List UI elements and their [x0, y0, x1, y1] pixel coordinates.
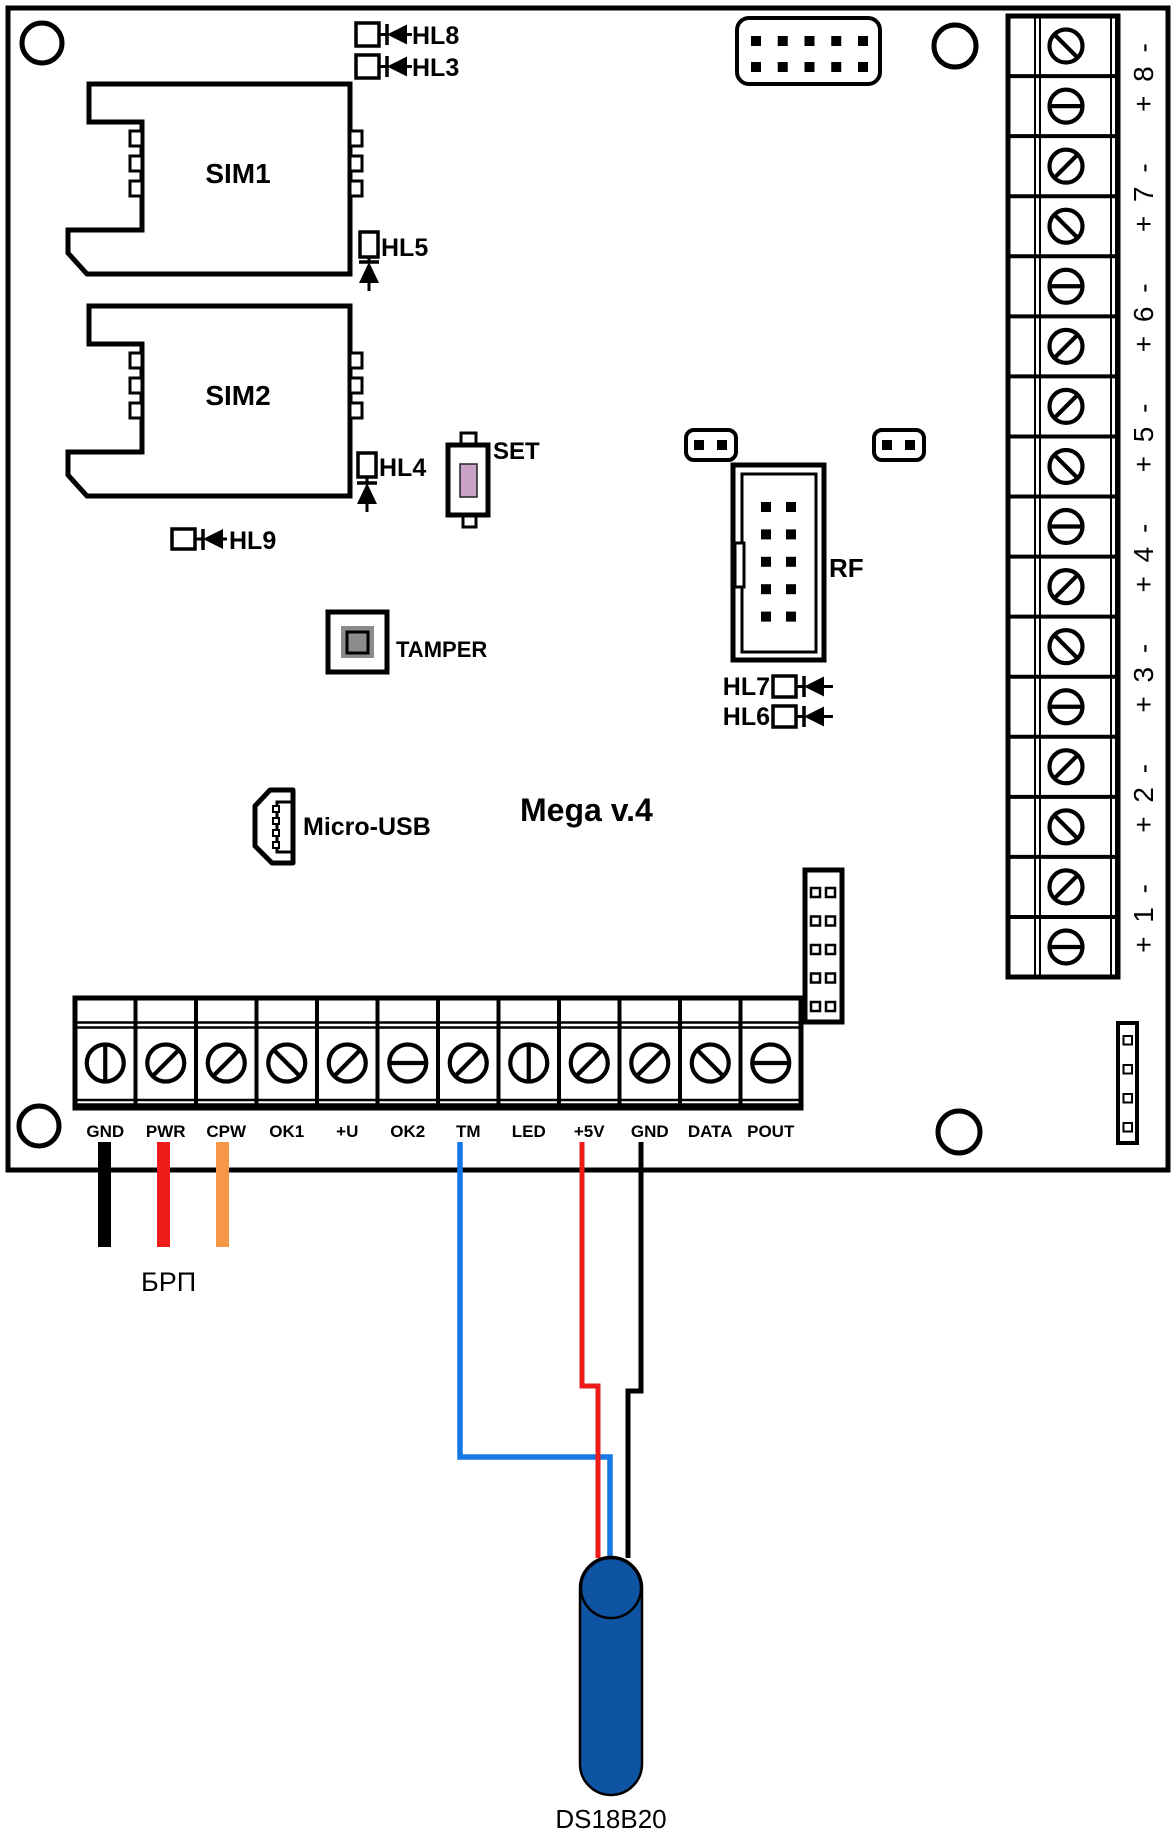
ds18b20-sensor: DS18B20 [555, 1557, 666, 1834]
sensor-wire-red-5v [582, 1142, 598, 1558]
rf-key-notch [735, 543, 744, 587]
rf-pin [761, 502, 771, 512]
rf-pin [761, 612, 771, 622]
top-header-pin [805, 62, 815, 72]
sensor-wire-black-gnd [628, 1142, 641, 1558]
hl4-label: HL4 [379, 454, 426, 482]
hl6-label: HL6 [723, 703, 770, 731]
top-header-pin [805, 36, 815, 46]
aux-header-pin [826, 888, 835, 897]
bottom-terminal-label: +U [336, 1122, 358, 1141]
right-terminal-label: + 1 - [1128, 881, 1159, 953]
aux-header-pin [811, 1002, 820, 1011]
top-header-pin [751, 62, 761, 72]
right-terminal-label: + 7 - [1128, 160, 1159, 232]
hl8-led-square [356, 23, 379, 46]
hl9-led-square [172, 529, 195, 549]
bottom-terminal-label: CPW [206, 1122, 247, 1141]
right-terminal-label: + 4 - [1128, 521, 1159, 593]
aux-header-pin [811, 888, 820, 897]
sensor-wires [460, 1142, 641, 1558]
rf-pin [761, 584, 771, 594]
top-pin-header-body [737, 18, 880, 84]
sim2-label: SIM2 [205, 380, 270, 411]
top-pin-header [737, 18, 880, 84]
aux-header-pin [811, 945, 820, 954]
set-button-actuator [460, 464, 477, 497]
top-header-pin [831, 62, 841, 72]
rf-connector-outline [733, 465, 824, 660]
bottom-terminal-label: PWR [146, 1122, 186, 1141]
hl7-label: HL7 [723, 673, 770, 701]
right-terminal-label: + 6 - [1128, 280, 1159, 352]
hl9-label: HL9 [229, 527, 276, 555]
right-terminal-label: + 8 - [1128, 40, 1159, 112]
right-terminal-label: + 2 - [1128, 761, 1159, 833]
ds18b20-body [580, 1557, 642, 1795]
aux-pin-header [805, 870, 842, 1022]
edge-connector-pin [1124, 1036, 1133, 1045]
bottom-terminal-label: GND [86, 1122, 124, 1141]
hl3-led-square [356, 55, 379, 78]
edge-connector-pin [1124, 1123, 1133, 1132]
aux-header-pin [826, 917, 835, 926]
rf-label: RF [829, 553, 864, 583]
bottom-terminal-label: +5V [574, 1122, 605, 1141]
psu-wire-black-gnd [98, 1142, 111, 1247]
hl6-led-square [773, 706, 796, 727]
aux-header-pin [811, 917, 820, 926]
hl3-label: HL3 [412, 54, 459, 82]
top-header-pin [778, 62, 788, 72]
bottom-terminal-label: TM [456, 1122, 481, 1141]
ds18b20-label: DS18B20 [555, 1804, 666, 1834]
hl5-label: HL5 [381, 234, 428, 262]
bottom-terminal-label: LED [512, 1122, 546, 1141]
psu-wire-red-pwr [157, 1142, 170, 1247]
mounting-hole-bottom-left [19, 1106, 59, 1146]
rf-pin [786, 612, 796, 622]
tamper-label: TAMPER [396, 637, 487, 662]
right-terminal-label: + 3 - [1128, 641, 1159, 713]
edge-connector-pin [1124, 1065, 1133, 1074]
sim1-label: SIM1 [205, 158, 270, 189]
bottom-terminal-label: DATA [688, 1122, 733, 1141]
top-header-pin [778, 36, 788, 46]
tamper-button-inner [347, 632, 368, 653]
diagram-canvas: HL8 HL3 SIM1 HL5 SIM2 [0, 0, 1176, 1848]
hl5-led-square [360, 232, 378, 257]
aux-header-pin [826, 945, 835, 954]
jumper-left [686, 430, 736, 460]
mounting-hole-top-right [934, 25, 976, 67]
rf-pin [786, 502, 796, 512]
top-header-pin [751, 36, 761, 46]
mounting-hole-bottom-right [938, 1111, 980, 1153]
bottom-terminal-label: OK1 [269, 1122, 304, 1141]
right-terminal-label: + 5 - [1128, 401, 1159, 473]
mounting-hole-top-left [22, 23, 62, 63]
edge-connector [1118, 1023, 1137, 1143]
rf-pin [786, 557, 796, 567]
jumper-right [874, 430, 924, 460]
hl4-led-square [358, 453, 376, 477]
edge-connector-pin [1124, 1094, 1133, 1103]
rf-pin [786, 529, 796, 539]
bottom-terminal-label: POUT [747, 1122, 795, 1141]
top-header-pin [831, 36, 841, 46]
aux-header-pin [826, 1002, 835, 1011]
top-header-pin [858, 36, 868, 46]
top-header-pin [858, 62, 868, 72]
micro-usb-label: Micro-USB [303, 813, 431, 841]
aux-header-pin [811, 974, 820, 983]
bottom-terminal-label: OK2 [390, 1122, 425, 1141]
hl8-label: HL8 [412, 22, 459, 50]
rf-pin [786, 584, 796, 594]
aux-header-pin [826, 974, 835, 983]
board-diagram: HL8 HL3 SIM1 HL5 SIM2 [0, 0, 1176, 1848]
hl7-led-square [773, 676, 796, 697]
rf-pin [761, 529, 771, 539]
psu-wire-orange-cpw [216, 1142, 229, 1247]
sensor-wire-blue-tm [460, 1142, 610, 1558]
rf-pin [761, 557, 771, 567]
bottom-terminal-label: GND [631, 1122, 669, 1141]
set-label: SET [493, 438, 540, 465]
psu-label: БРП [141, 1267, 196, 1297]
board-title: Mega v.4 [520, 792, 653, 828]
